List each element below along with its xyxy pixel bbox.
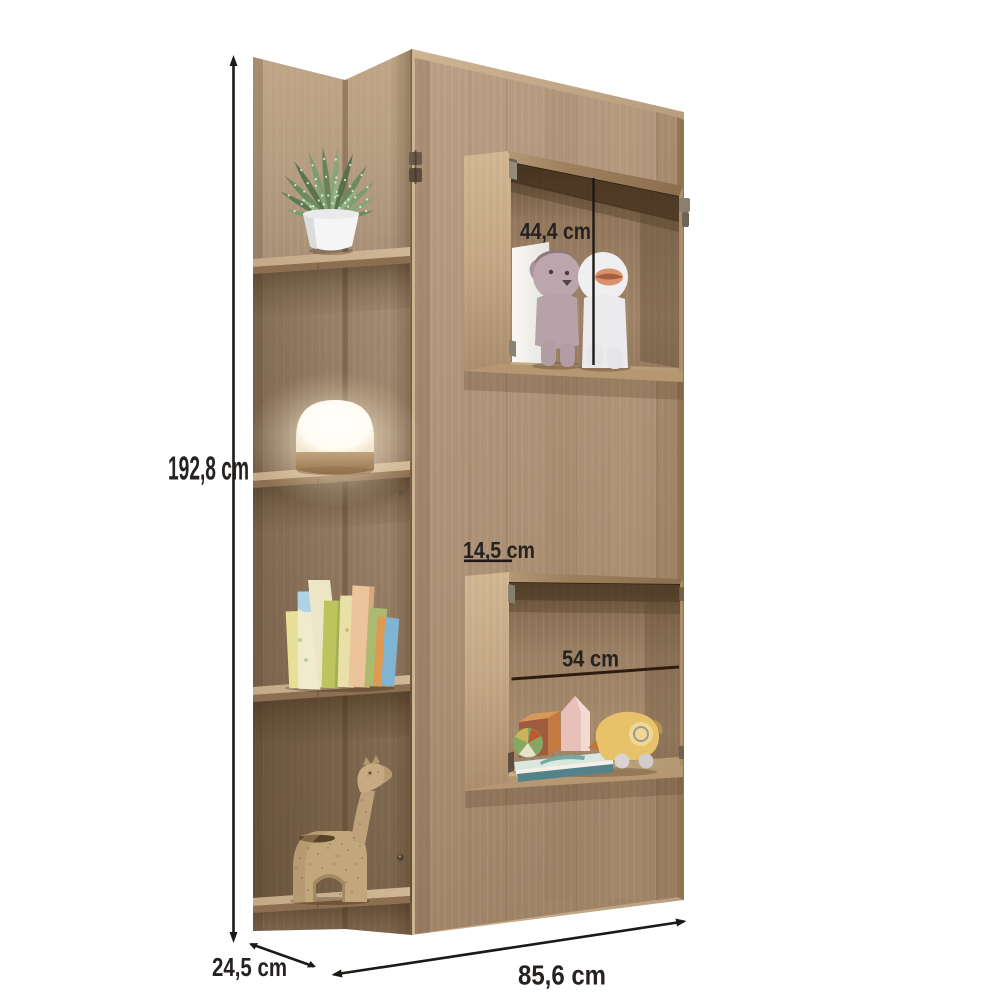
svg-text:54 cm: 54 cm (562, 646, 619, 672)
svg-text:85,6 cm: 85,6 cm (518, 960, 606, 991)
svg-text:14,5 cm: 14,5 cm (463, 537, 535, 563)
svg-text:44,4 cm: 44,4 cm (520, 218, 591, 244)
svg-text:24,5 cm: 24,5 cm (212, 952, 287, 982)
svg-text:192,8 cm: 192,8 cm (168, 450, 249, 487)
